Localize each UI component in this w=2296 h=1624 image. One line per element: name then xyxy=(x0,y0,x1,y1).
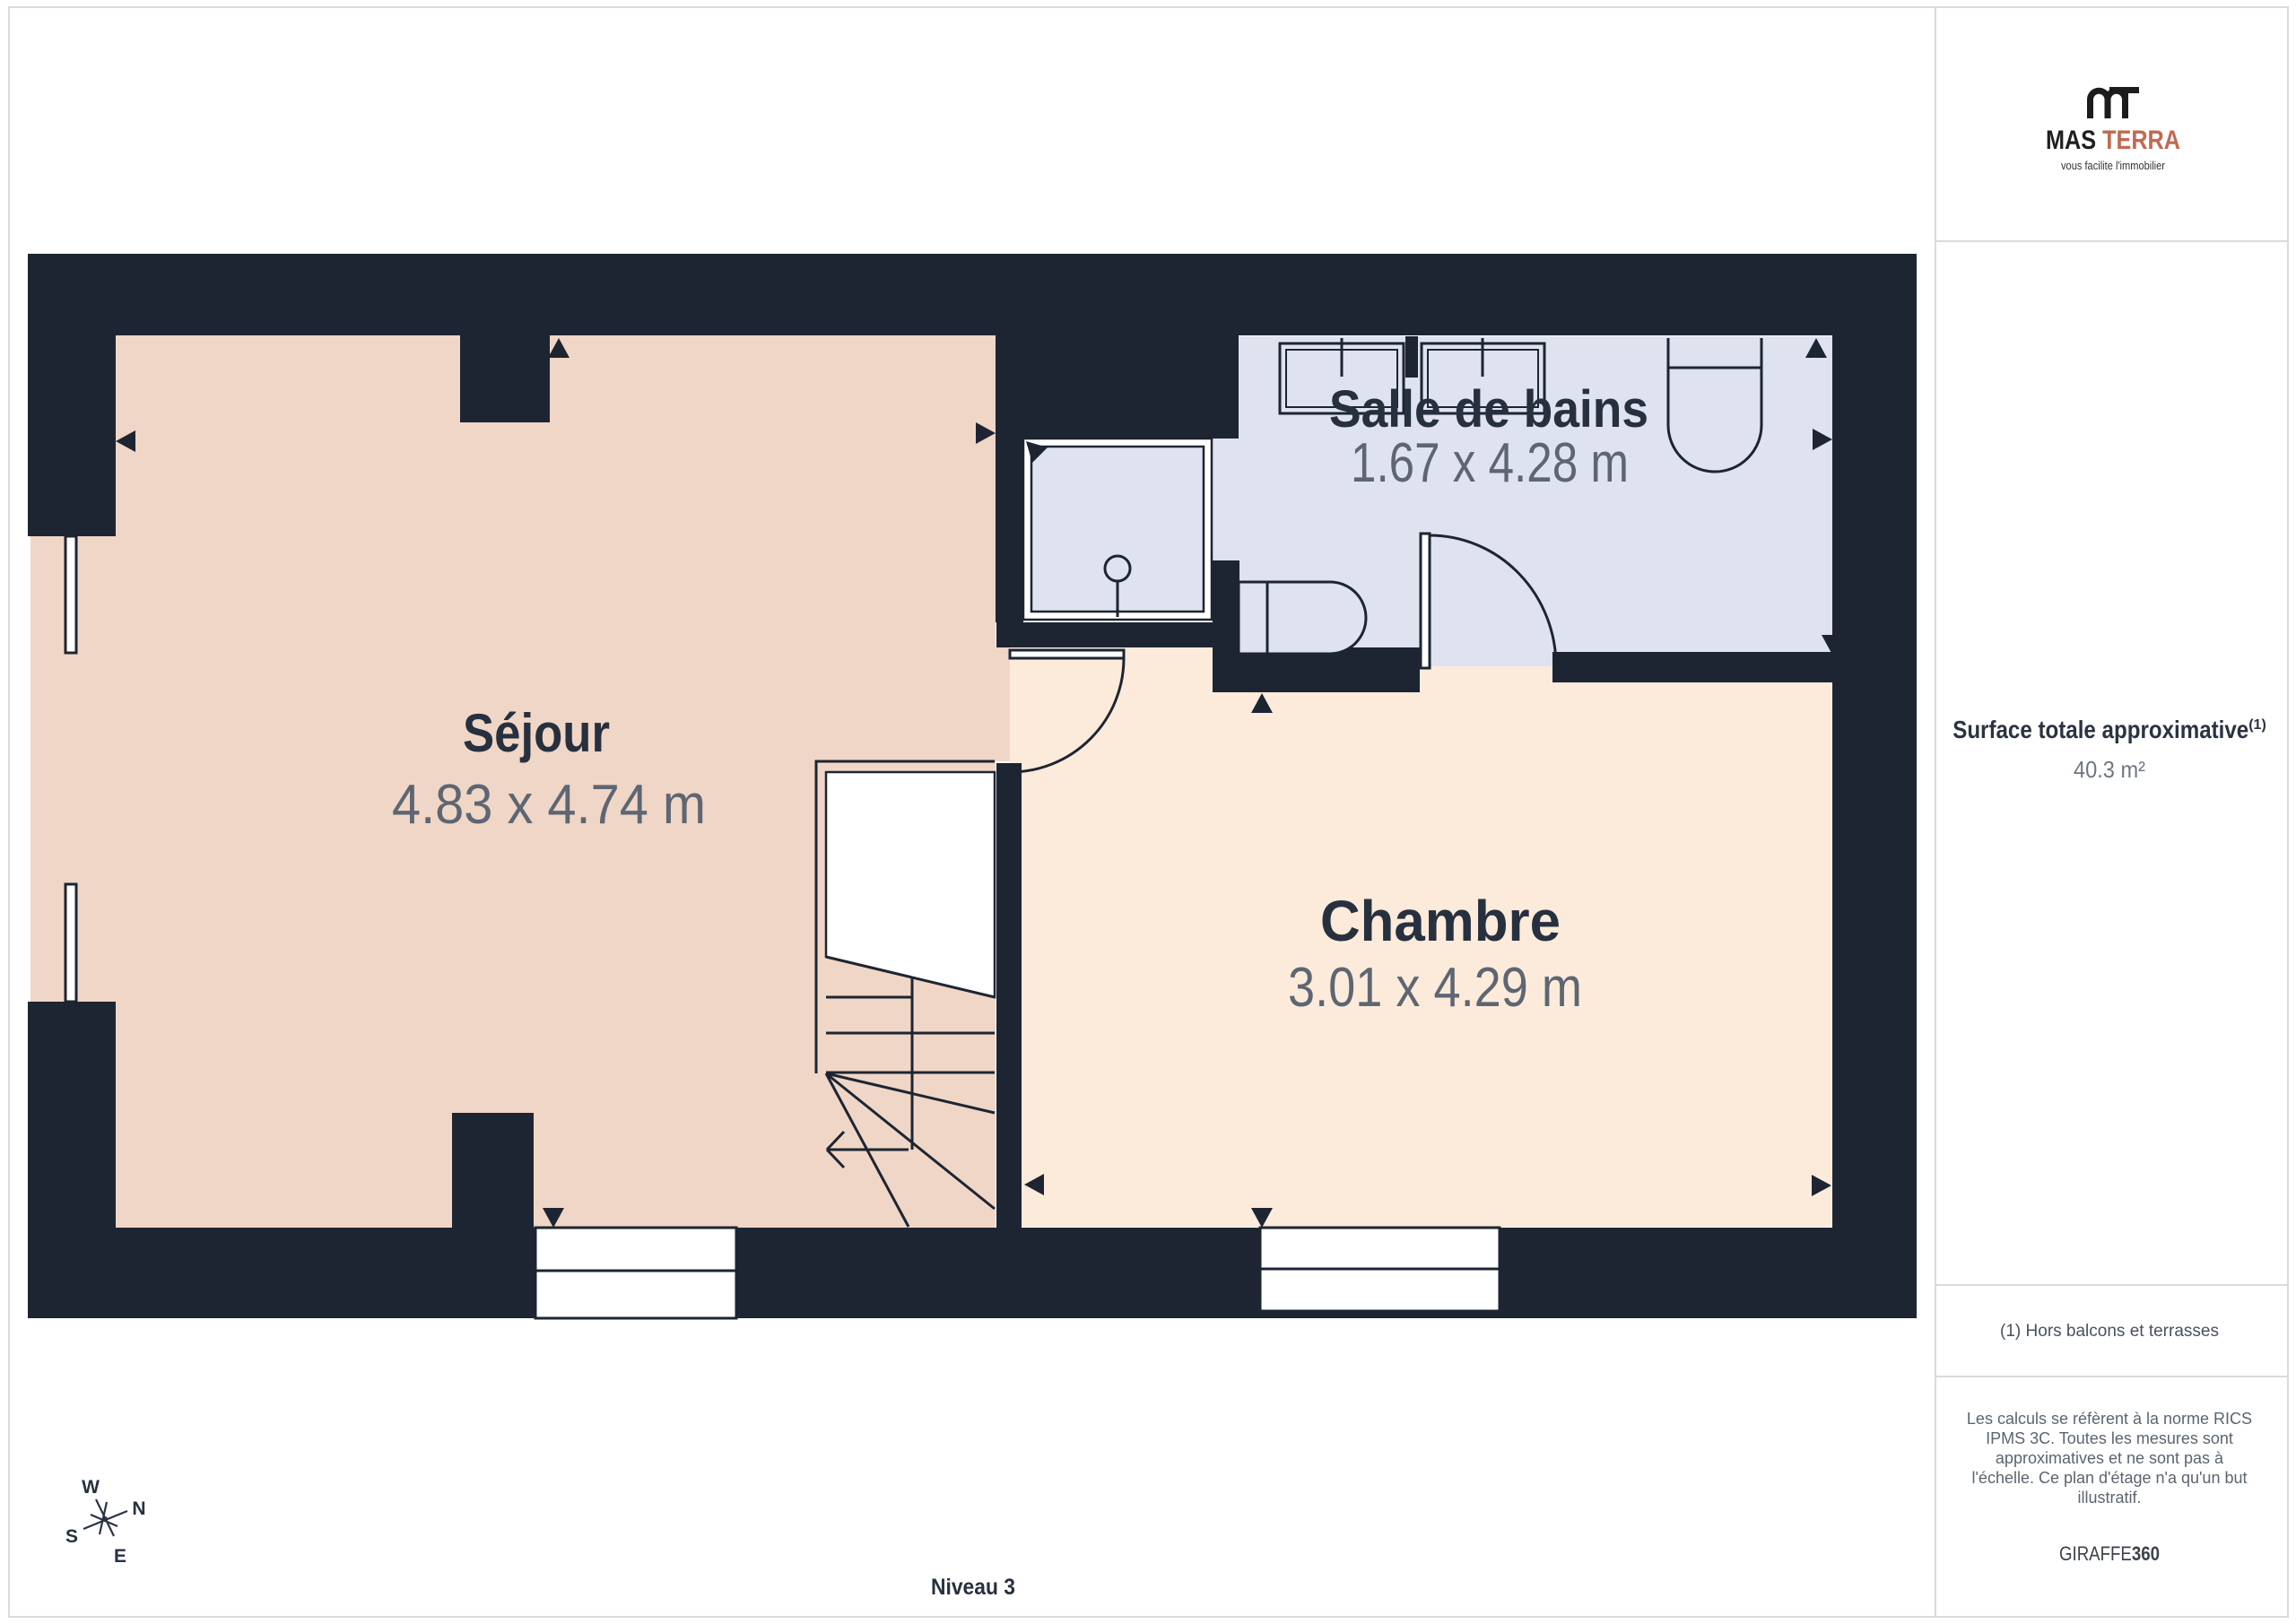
svg-text:vous facilite l'immobilier: vous facilite l'immobilier xyxy=(2061,160,2165,172)
svg-text:40.3 m²: 40.3 m² xyxy=(2074,756,2145,783)
svg-text:Chambre: Chambre xyxy=(1320,889,1561,953)
svg-text:GIRAFFE360: GIRAFFE360 xyxy=(2059,1542,2160,1565)
svg-text:N: N xyxy=(132,1498,145,1519)
svg-text:E: E xyxy=(114,1546,126,1567)
svg-text:1.67 x 4.28 m: 1.67 x 4.28 m xyxy=(1351,432,1629,494)
svg-text:Niveau 3: Niveau 3 xyxy=(931,1575,1015,1600)
svg-text:4.83 x 4.74 m: 4.83 x 4.74 m xyxy=(392,774,706,836)
svg-text:MAS TERRA: MAS TERRA xyxy=(2046,126,2180,155)
svg-text:Les calculs se réfèrent à la n: Les calculs se réfèrent à la norme RICS xyxy=(1967,1410,2252,1428)
svg-text:Surface totale approximative(1: Surface totale approximative(1) xyxy=(1952,716,2266,743)
svg-text:Séjour: Séjour xyxy=(463,703,610,763)
svg-text:3.01 x 4.29 m: 3.01 x 4.29 m xyxy=(1288,957,1582,1019)
svg-text:IPMS 3C. Toutes les mesures so: IPMS 3C. Toutes les mesures sont xyxy=(1986,1429,2233,1447)
svg-text:Salle de bains: Salle de bains xyxy=(1329,380,1648,439)
svg-text:W: W xyxy=(82,1477,100,1498)
svg-text:illustratif.: illustratif. xyxy=(2077,1489,2141,1507)
svg-text:(1) Hors balcons et terrasses: (1) Hors balcons et terrasses xyxy=(2000,1322,2219,1341)
svg-text:l'échelle. Ce plan d'étage n'a: l'échelle. Ce plan d'étage n'a qu'un but xyxy=(1972,1469,2248,1487)
svg-text:S: S xyxy=(65,1526,78,1547)
svg-text:approximatives et ne sont pas: approximatives et ne sont pas à xyxy=(1996,1449,2224,1467)
